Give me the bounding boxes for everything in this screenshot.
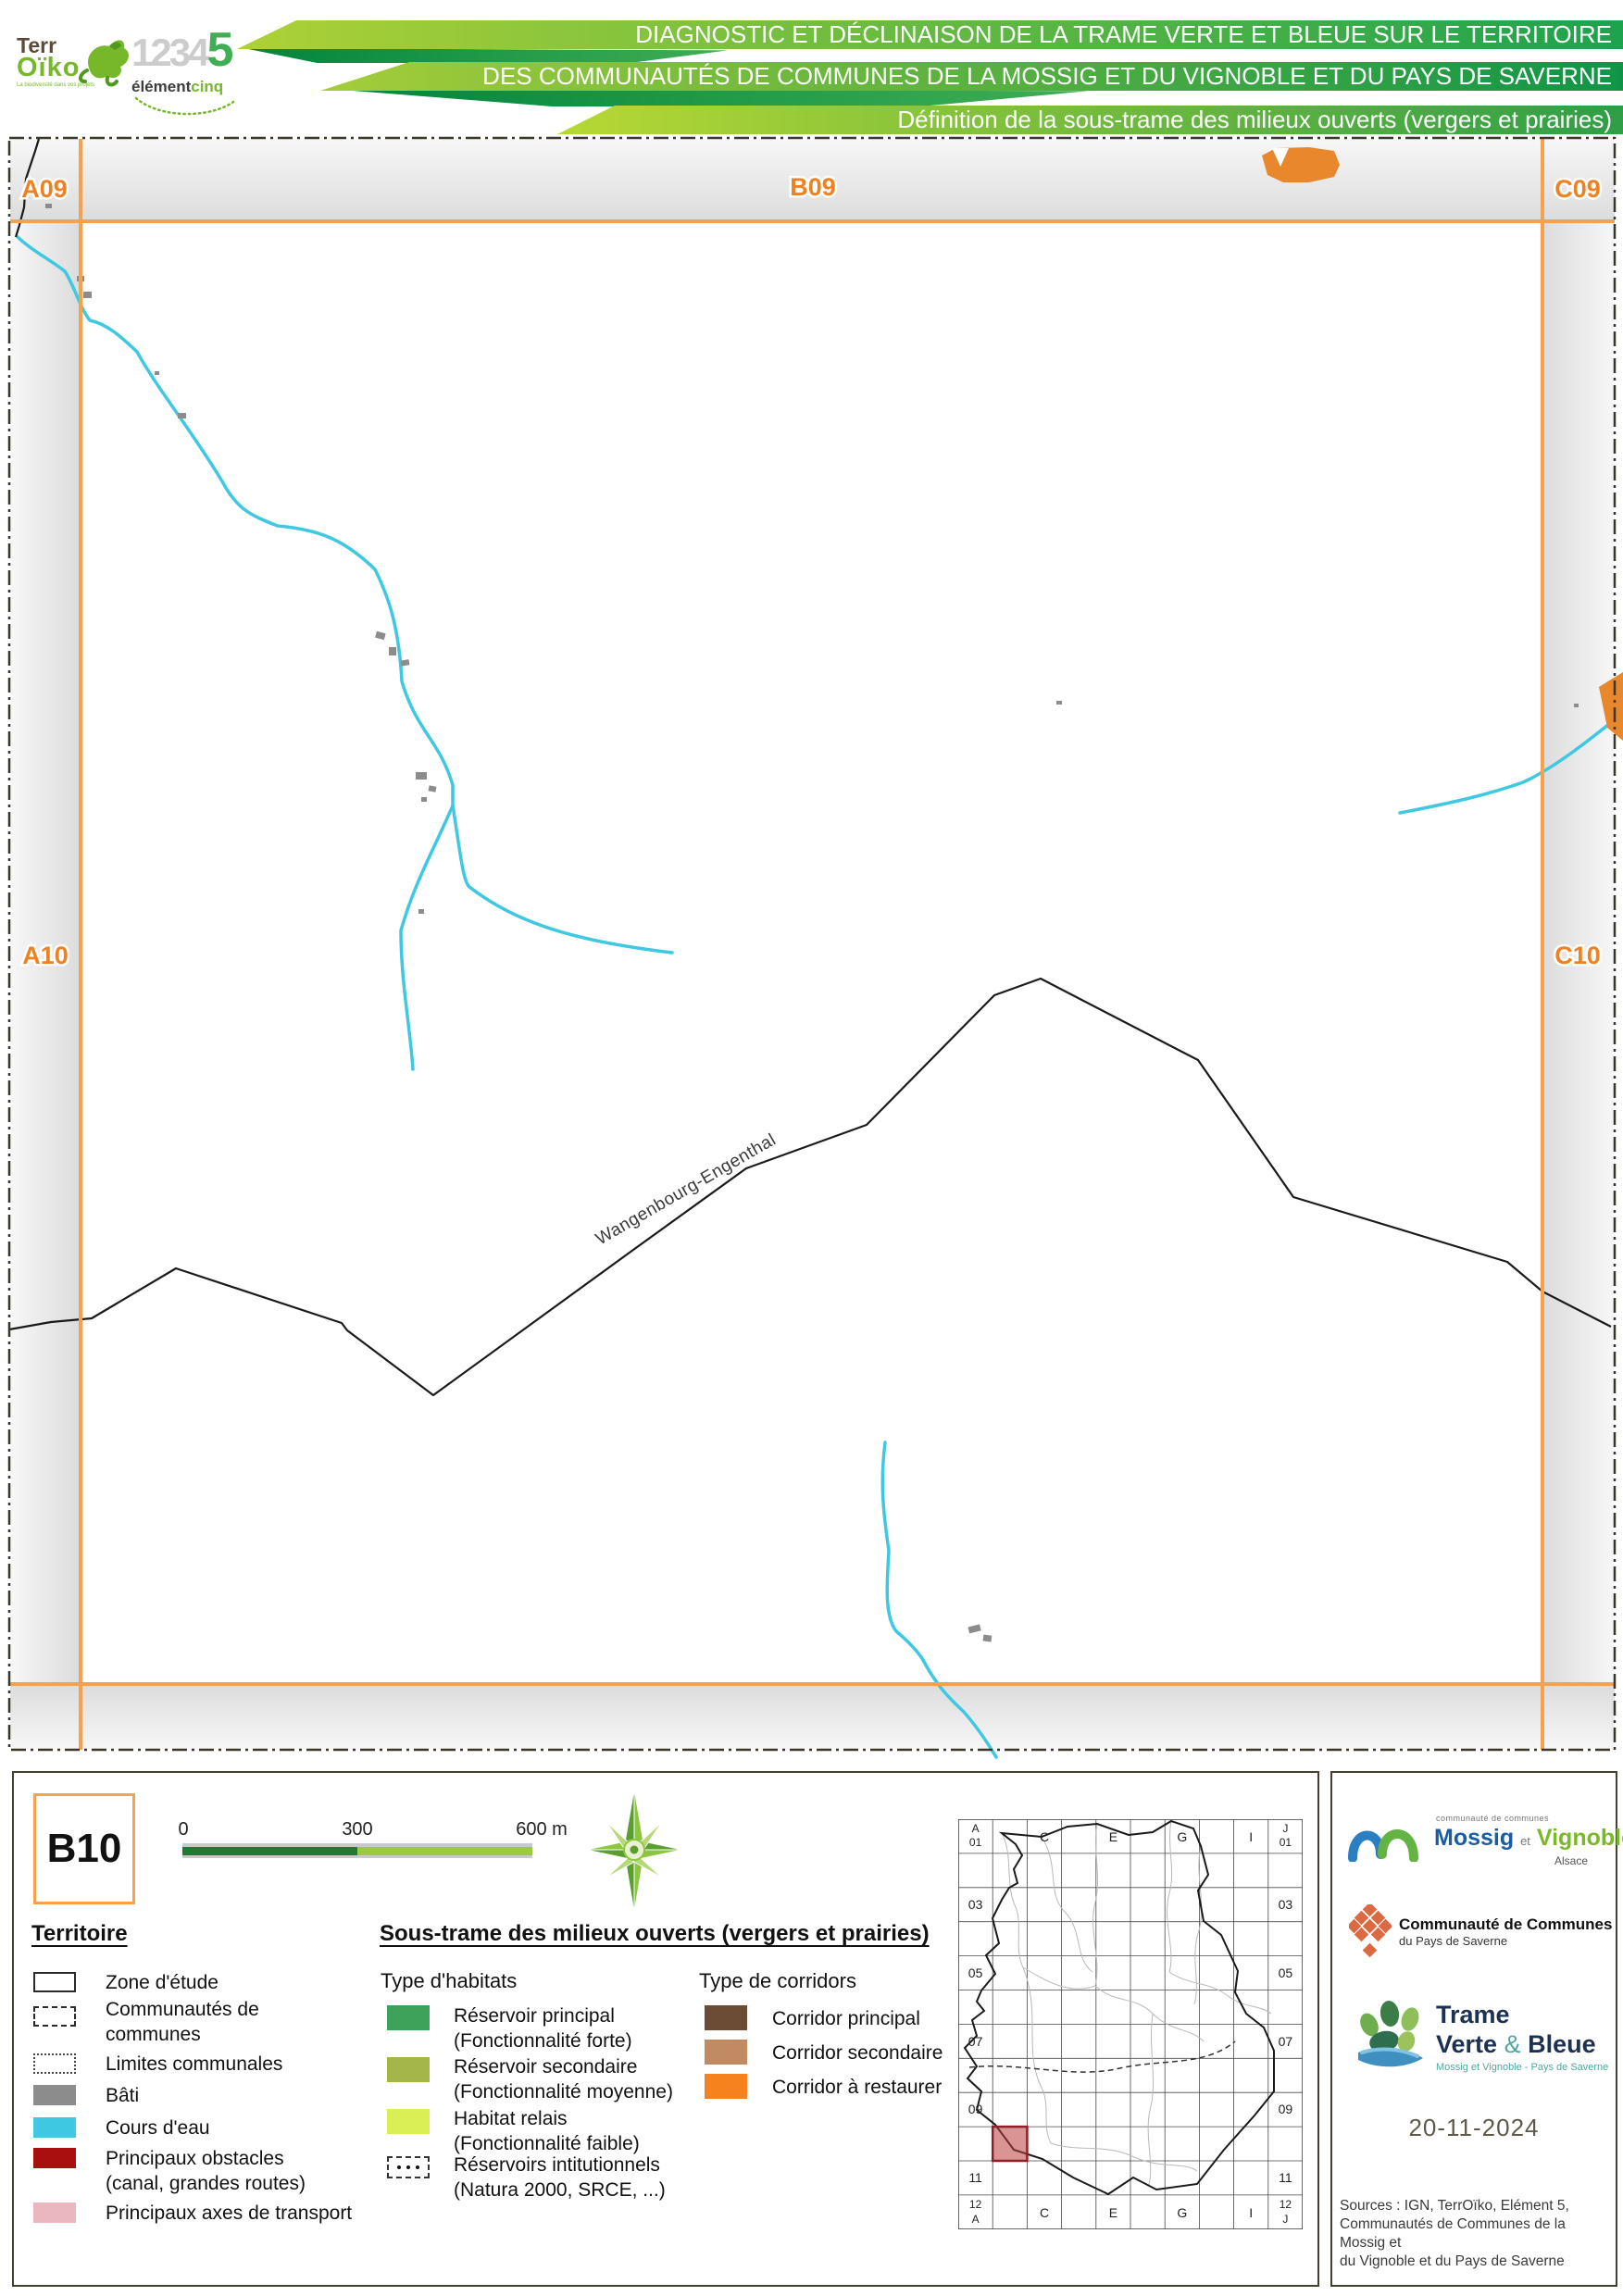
- alsace-label: Alsace: [1554, 1854, 1588, 1867]
- mossig-small-text: communauté de communes: [1436, 1814, 1549, 1823]
- minimap-top-col-e: E: [1109, 1829, 1117, 1844]
- map-date: 20-11-2024: [1332, 2114, 1616, 2142]
- compass-rose-icon: [579, 1783, 690, 1922]
- minimap-bottom-col-i: I: [1249, 2205, 1253, 2220]
- saverne-line1: Communauté de Communes: [1399, 1915, 1612, 1934]
- scalebar: [182, 1843, 532, 1858]
- minimap-top-col-i: I: [1249, 1829, 1253, 1844]
- minimap-corner-tl-num: 01: [969, 1836, 982, 1849]
- minimap-row-left-11: 11: [968, 2170, 982, 2185]
- scalebar-segment-dark: [182, 1847, 357, 1855]
- minimap-row-left-05: 05: [968, 1965, 983, 1980]
- vignoble-name: Vignoble: [1537, 1825, 1623, 1851]
- corridors-heading: Type de corridors: [699, 1969, 856, 1993]
- minimap-row-right-05: 05: [1279, 1965, 1293, 1980]
- scalebar-tick-0: 0: [178, 1819, 188, 1841]
- legend-panel: B10 0 300 600 m Territoire Zone d'étude …: [12, 1771, 1319, 2287]
- legend-swatch-reservoirs-institutionnels: [387, 2156, 430, 2178]
- tvb-subtitle: Mossig et Vignoble - Pays de Saverne: [1436, 2062, 1608, 2073]
- minimap-corner-tr-num: 01: [1280, 1836, 1292, 1849]
- legend-swatch-axes: [33, 2202, 76, 2223]
- grid-label-c09: C09: [1554, 175, 1601, 203]
- grid-label-b09: B09: [790, 173, 836, 201]
- minimap-corner-bl-num: 12: [969, 2198, 982, 2211]
- sheet-code-box: B10: [33, 1793, 135, 1904]
- legend-swatch-corridor-secondaire: [705, 2040, 747, 2065]
- legend-swatch-limites: [33, 2053, 76, 2074]
- soustrame-heading: Sous-trame des milieux ouverts (vergers …: [380, 1921, 930, 1947]
- legend-label-res-principal-2: (Fonctionnalité forte): [454, 2029, 632, 2053]
- legend-label-res-principal-1: Réservoir principal: [454, 2004, 615, 2028]
- minimap-corner-bl-letter: A: [972, 2213, 980, 2226]
- minimap-bottom-col-c: C: [1040, 2205, 1049, 2220]
- legend-label-corridor-secondaire: Corridor secondaire: [772, 2041, 943, 2065]
- minimap-row-left-09: 09: [968, 2102, 983, 2116]
- tvb-bleue: Bleue: [1528, 2030, 1596, 2058]
- pays-saverne-logo-icon: [1349, 1904, 1392, 1962]
- minimap-row-right-11: 11: [1279, 2170, 1292, 2185]
- legend-swatch-corridor-principal: [705, 2005, 747, 2030]
- minimap-bottom-col-e: E: [1109, 2205, 1117, 2220]
- legend-swatch-zone-etude: [33, 1972, 76, 1992]
- minimap-row-left-03: 03: [968, 1897, 983, 1912]
- minimap-row-right-07: 07: [1279, 2034, 1293, 2049]
- mossig-vignoble-logo-icon: [1345, 1814, 1430, 1862]
- minimap-bottom-col-g: G: [1177, 2205, 1187, 2220]
- map-inner-area: [81, 221, 1542, 1684]
- minimap-top-col-g: G: [1177, 1829, 1187, 1844]
- legend-label-res-secondaire-1: Réservoir secondaire: [454, 2055, 637, 2079]
- habitats-heading: Type d'habitats: [381, 1969, 517, 1993]
- grid-label-a10: A10: [22, 942, 69, 969]
- legend-label-res-inst-1: Réservoirs intitutionnels: [454, 2153, 660, 2177]
- minimap-top-col-c: C: [1040, 1829, 1049, 1844]
- legend-label-cours-eau: Cours d'eau: [106, 2116, 210, 2140]
- minimap-corner-br-num: 12: [1280, 2198, 1292, 2211]
- legend-label-zone-etude: Zone d'étude: [106, 1971, 218, 1995]
- legend-label-communautes-1: Communautés de: [106, 1998, 259, 2022]
- legend-swatch-reservoir-secondaire: [387, 2057, 430, 2082]
- legend-swatch-cours-eau: [33, 2117, 76, 2138]
- legend-label-habitat-relais-1: Habitat relais: [454, 2107, 568, 2131]
- tvb-amp: &: [1504, 2030, 1521, 2058]
- legend-label-limites: Limites communales: [106, 2053, 282, 2077]
- scalebar-segment-light: [357, 1847, 532, 1855]
- mossig-name: Mossig: [1434, 1825, 1514, 1851]
- minimap-row-right-09: 09: [1279, 2102, 1293, 2116]
- minimap-corner-tl-letter: A: [972, 1822, 980, 1835]
- grid-label-a09: A09: [21, 175, 68, 203]
- legend-swatch-obstacles: [33, 2148, 76, 2168]
- legend-swatch-habitat-relais: [387, 2109, 430, 2134]
- legend-label-obstacles-2: (canal, grandes routes): [106, 2172, 306, 2196]
- legend-label-communautes-2: communes: [106, 2023, 201, 2047]
- legend-label-res-inst-2: (Natura 2000, SRCE, ...): [454, 2178, 666, 2202]
- legend-label-obstacles-1: Principaux obstacles: [106, 2147, 284, 2171]
- legend-swatch-corridor-restaurer: [705, 2074, 747, 2099]
- legend-label-corridor-principal: Corridor principal: [772, 2007, 920, 2031]
- mossig-et: et: [1520, 1834, 1530, 1848]
- legend-swatch-bati: [33, 2085, 76, 2105]
- minimap-current-sheet-highlight[interactable]: [993, 2127, 1027, 2161]
- minimap-row-left-07: 07: [968, 2034, 983, 2049]
- territoire-heading: Territoire: [31, 1921, 128, 1947]
- tvb-line1: Trame: [1436, 2001, 1510, 2029]
- sources-text: Sources : IGN, TerrOïko, Elément 5, Comm…: [1340, 2197, 1610, 2272]
- legend-label-res-secondaire-2: (Fonctionnalité moyenne): [454, 2080, 673, 2104]
- legend-label-bati: Bâti: [106, 2084, 139, 2108]
- overview-minimap: A 01 C E G I J 01 03 05 07 09 11 03 05 0…: [958, 1819, 1303, 2229]
- saverne-line2: du Pays de Saverne: [1399, 1934, 1507, 1948]
- trame-verte-bleue-logo-icon: [1353, 1993, 1434, 2073]
- legend-label-corridor-restaurer: Corridor à restaurer: [772, 2076, 942, 2100]
- scalebar-tick-600: 600 m: [516, 1819, 568, 1841]
- minimap-row-right-03: 03: [1279, 1897, 1293, 1912]
- legend-label-axes: Principaux axes de transport: [106, 2202, 352, 2226]
- grid-label-c10: C10: [1554, 942, 1601, 969]
- legend-swatch-reservoir-principal: [387, 2005, 430, 2030]
- scalebar-tick-300: 300: [342, 1819, 372, 1841]
- minimap-corner-br-letter: J: [1282, 2213, 1288, 2226]
- minimap-corner-tr-letter: J: [1282, 1822, 1288, 1835]
- credits-panel: communauté de communes Mossig et Vignobl…: [1330, 1771, 1617, 2287]
- legend-swatch-communautes: [33, 2006, 76, 2027]
- tvb-verte: Verte: [1436, 2030, 1497, 2058]
